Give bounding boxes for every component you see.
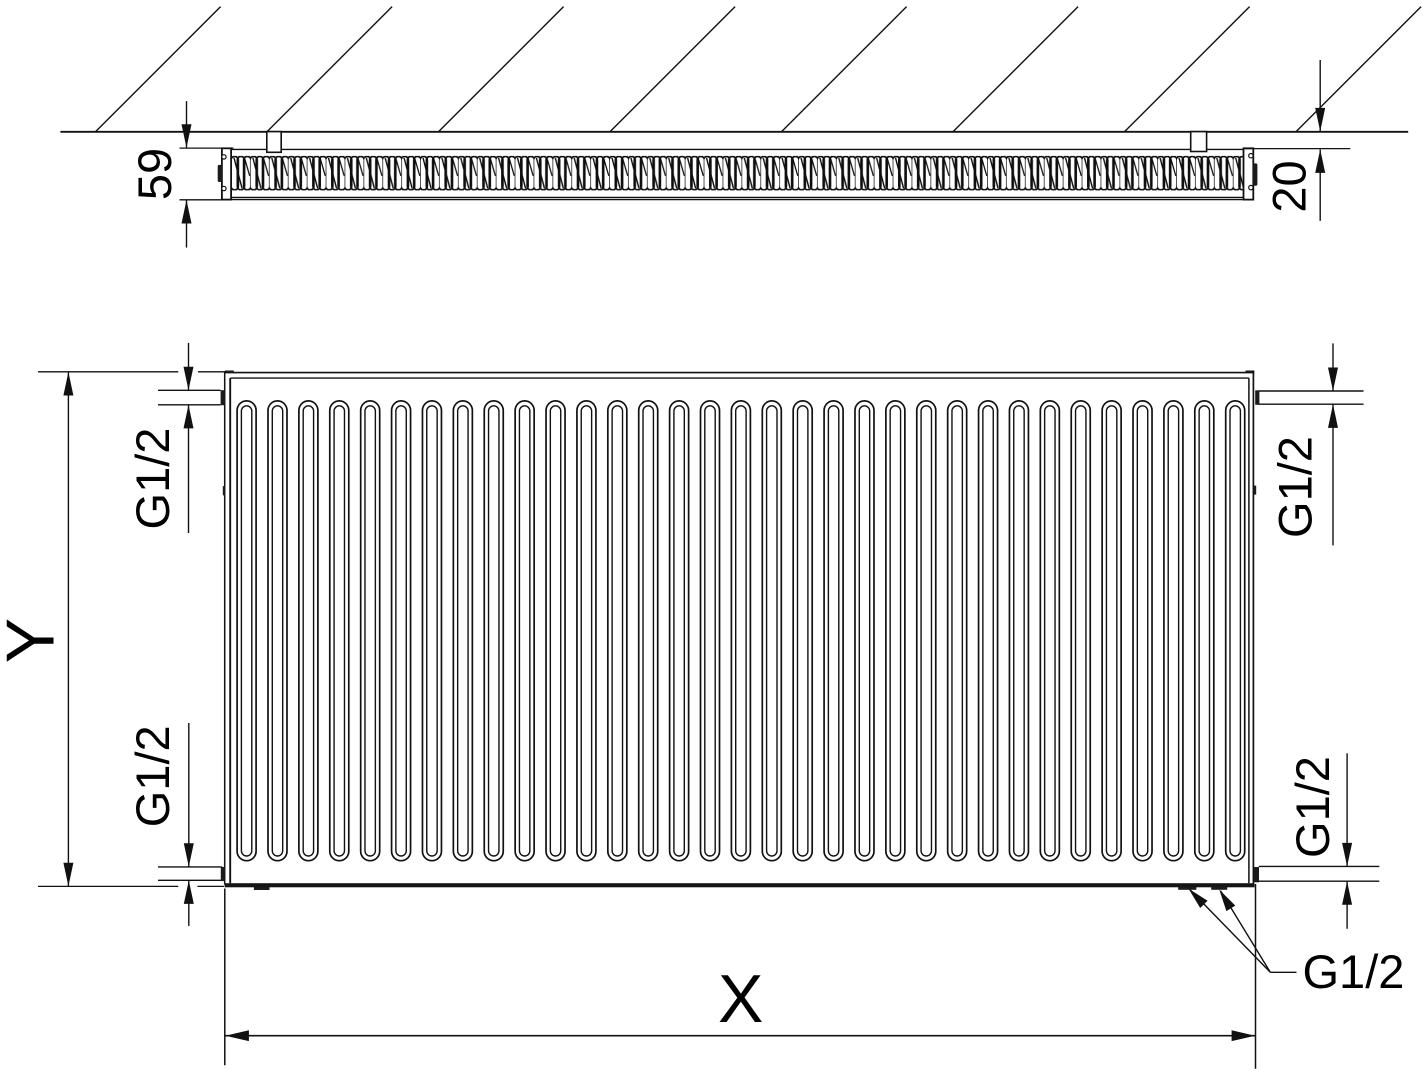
svg-text:G1/2: G1/2 xyxy=(126,428,179,530)
svg-text:G1/2: G1/2 xyxy=(126,725,179,827)
svg-text:G1/2: G1/2 xyxy=(1303,945,1405,998)
svg-text:20: 20 xyxy=(1262,160,1315,212)
svg-text:G1/2: G1/2 xyxy=(1286,756,1339,858)
svg-text:X: X xyxy=(718,961,763,1037)
svg-text:Y: Y xyxy=(0,618,68,663)
svg-text:59: 59 xyxy=(128,148,181,200)
svg-text:G1/2: G1/2 xyxy=(1269,436,1322,538)
